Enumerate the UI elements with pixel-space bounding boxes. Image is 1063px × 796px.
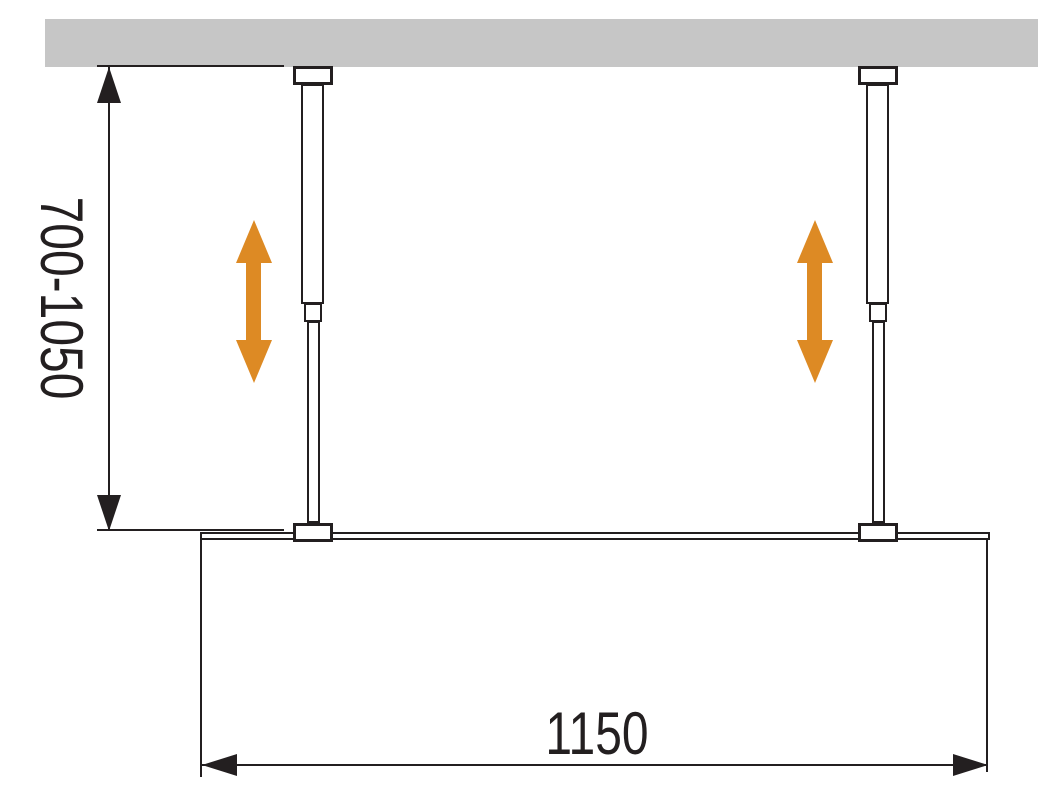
orange-arrow-shaft: [807, 259, 822, 343]
orange-arrow-down-icon: [797, 340, 833, 383]
extension-line-right: [986, 540, 988, 772]
arrowhead-left-icon: [202, 754, 237, 776]
orange-arrow-up-icon: [236, 220, 272, 263]
glass-clamp: [293, 523, 333, 542]
telescopic-collar: [869, 303, 887, 322]
extension-line-left: [200, 540, 202, 777]
extension-line-top: [97, 65, 284, 67]
inner-tube: [872, 321, 885, 523]
inner-tube: [307, 321, 320, 523]
orange-arrow-shaft: [246, 259, 261, 343]
ceiling-bracket: [858, 66, 898, 85]
diagram-canvas: 700-1050 1150: [0, 0, 1063, 796]
horizontal-dimension-label: 1150: [545, 704, 648, 764]
ceiling-bracket: [293, 66, 333, 85]
dimension-line-vertical: [108, 67, 110, 531]
extension-line-bottom: [97, 529, 284, 531]
glass-clamp: [858, 523, 898, 542]
vertical-dimension-label: 700-1050: [31, 197, 91, 400]
orange-arrow-up-icon: [797, 220, 833, 263]
telescopic-collar: [304, 303, 322, 322]
arrowhead-right-icon: [953, 754, 988, 776]
arrowhead-down-icon: [97, 495, 121, 531]
ceiling-band: [45, 19, 1038, 67]
orange-arrow-down-icon: [236, 340, 272, 383]
outer-tube: [866, 84, 889, 304]
arrowhead-up-icon: [97, 67, 121, 103]
outer-tube: [301, 84, 324, 304]
